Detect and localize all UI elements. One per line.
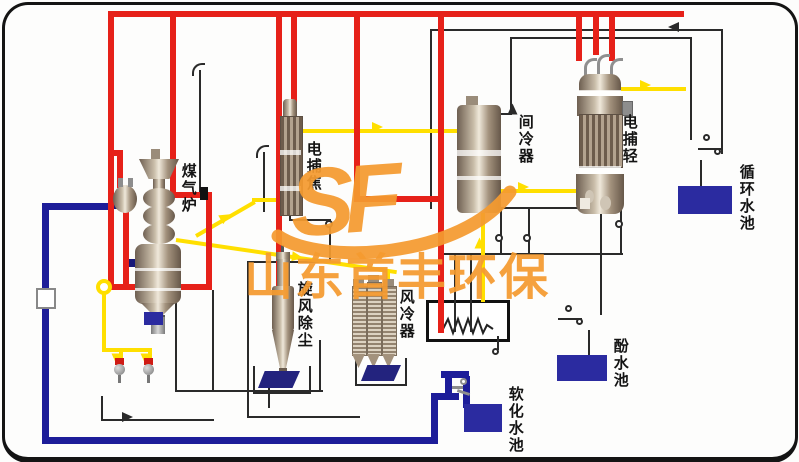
pipe-segment — [108, 150, 123, 156]
ep-light-band — [579, 166, 621, 174]
valve-ring — [565, 305, 572, 312]
furnace-side-pot-stub — [128, 178, 133, 187]
pipe-segment — [102, 348, 152, 352]
pipe-segment — [431, 396, 438, 444]
burner-valve-ball — [114, 364, 125, 375]
flow-arrow — [372, 122, 383, 132]
furnace-feeder-bulb — [143, 224, 175, 244]
furnace-side-pot-stub — [118, 178, 123, 187]
label-ep-light: 电捕轻 — [620, 114, 637, 165]
valve-ring — [460, 378, 467, 385]
instrument-lance-hook — [192, 63, 205, 76]
pipe-segment — [588, 330, 590, 356]
pipe-segment — [253, 366, 255, 394]
pipe-segment — [175, 290, 177, 392]
label-furnace: 煤气炉 — [179, 163, 196, 214]
furnace-top-stub — [151, 149, 160, 160]
instrument-valve — [200, 187, 208, 200]
pipe-segment — [247, 416, 360, 418]
burner-valve-ball — [143, 364, 154, 375]
valve-ring — [714, 148, 721, 155]
pipe-segment — [600, 255, 602, 315]
valve-ring — [703, 134, 710, 141]
flow-arrow — [122, 412, 133, 422]
furnace-band — [135, 268, 181, 271]
cyclone-collection-tray — [258, 371, 300, 388]
furnace-side-pot — [113, 185, 137, 213]
cyclone-taper — [272, 330, 294, 370]
pipe-segment — [355, 384, 407, 386]
pipe-segment — [42, 203, 110, 210]
pipe-segment — [101, 396, 103, 421]
valve-ring — [615, 220, 623, 228]
pipe-segment — [206, 196, 212, 290]
ep-light-porthole — [600, 196, 611, 210]
pipe-segment — [253, 392, 311, 394]
pipe-segment — [42, 203, 49, 444]
aircooler-tube-point — [352, 354, 365, 368]
pipe-segment — [199, 70, 201, 196]
pipe-segment — [600, 207, 602, 255]
valve-ring — [96, 279, 112, 295]
label-circulating-pool: 循环水池 — [737, 164, 754, 232]
pipe-segment — [620, 210, 622, 255]
aircooler-collection-tray — [361, 365, 401, 381]
pipe-segment — [123, 212, 129, 290]
furnace-feeder-bulb — [143, 188, 175, 208]
ep-light-ribbed-body — [579, 114, 623, 168]
pipe-segment — [319, 340, 321, 392]
small-seal-pot — [144, 312, 163, 325]
furnace-body — [135, 244, 181, 304]
pipe-segment — [700, 160, 702, 187]
pipe-segment — [721, 29, 723, 154]
process-flow-diagram: 煤气炉 电捕焦 间冷器 电捕轻 循环水池 旋风除尘 风冷器 酚水池 软化水池 S… — [0, 0, 799, 462]
pipe-segment — [212, 290, 214, 392]
watermark-company-text: 山东首丰环保 — [244, 238, 550, 309]
ep-light-upper-drum — [577, 96, 623, 116]
burner-valve-stem — [147, 375, 150, 383]
pipe-segment — [510, 37, 691, 39]
furnace-band — [135, 288, 181, 291]
pipe-segment — [42, 437, 438, 444]
water-line-meter — [36, 288, 56, 309]
pipe-segment — [405, 358, 407, 386]
flow-arrow — [640, 80, 651, 90]
ep-light-cap — [579, 74, 621, 91]
valve-ring — [492, 348, 499, 355]
ep-light-hatch — [580, 198, 590, 209]
flow-arrow — [508, 104, 518, 115]
pipe-segment — [593, 11, 599, 55]
pipe-segment — [690, 37, 692, 140]
instrument-lance-hook — [256, 145, 269, 158]
intercooler-band — [457, 150, 501, 156]
burner-valve-stem — [118, 375, 121, 383]
label-phenol-pool: 酚水池 — [611, 338, 628, 389]
phenol-water-pool-tank — [557, 355, 607, 381]
ep-light-collar — [579, 90, 621, 96]
flow-arrow — [668, 22, 679, 32]
pipe-segment — [291, 11, 297, 109]
pipe-segment — [576, 11, 582, 61]
softened-water-pool-tank — [464, 404, 502, 432]
pipe-segment — [101, 419, 214, 421]
valve-ring — [576, 318, 583, 325]
pipe-segment — [309, 366, 311, 394]
pipe-segment — [102, 293, 106, 350]
label-softened-pool: 软化水池 — [506, 386, 523, 454]
furnace-feeder-bulb — [143, 206, 175, 226]
circulating-water-pool-tank — [678, 186, 732, 214]
